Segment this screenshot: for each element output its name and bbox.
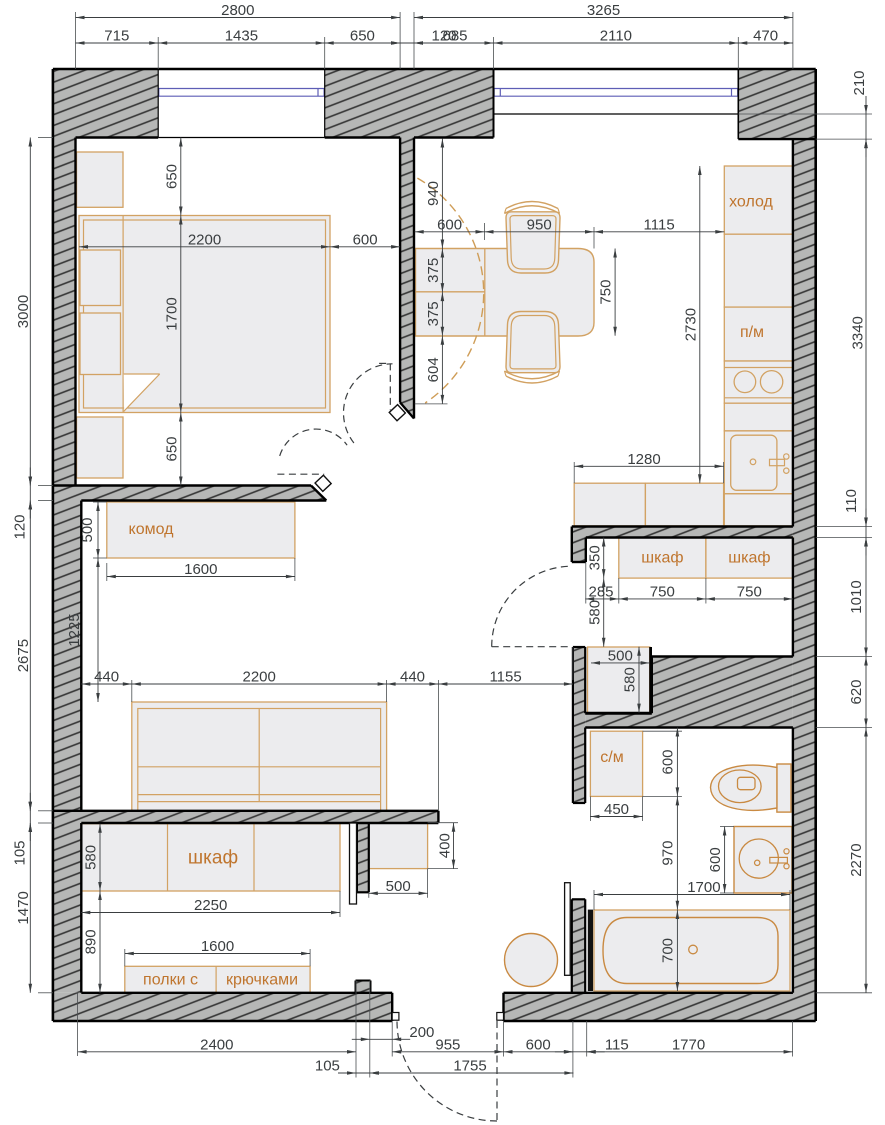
svg-text:2730: 2730 [682,308,699,341]
svg-text:2675: 2675 [15,639,32,672]
svg-text:650: 650 [350,27,375,44]
svg-text:3265: 3265 [587,2,620,19]
svg-text:115: 115 [605,1036,629,1053]
svg-text:470: 470 [753,27,778,44]
svg-text:600: 600 [707,847,724,872]
svg-text:650: 650 [163,164,180,189]
svg-text:105: 105 [315,1057,340,1074]
svg-text:шкаф: шкаф [188,848,238,869]
svg-text:950: 950 [527,216,552,233]
svg-text:685: 685 [442,27,467,44]
svg-text:750: 750 [598,280,615,305]
svg-text:890: 890 [82,929,99,954]
svg-text:500: 500 [386,878,411,895]
svg-text:крючками: крючками [226,972,298,989]
svg-text:600: 600 [659,749,676,774]
svg-text:120: 120 [11,514,28,539]
svg-text:3000: 3000 [15,295,32,328]
svg-text:210: 210 [851,70,868,95]
svg-text:450: 450 [604,801,629,818]
svg-text:п/м: п/м [740,324,764,341]
svg-text:1700: 1700 [163,297,180,330]
svg-text:600: 600 [353,231,378,248]
svg-text:комод: комод [129,521,175,538]
svg-text:500: 500 [608,647,633,664]
svg-text:2250: 2250 [194,897,227,914]
svg-text:580: 580 [586,600,603,625]
svg-text:200: 200 [409,1024,434,1041]
svg-text:105: 105 [11,840,28,865]
svg-text:750: 750 [650,583,675,600]
svg-text:440: 440 [94,668,119,685]
svg-text:375: 375 [425,258,442,283]
svg-text:1115: 1115 [644,216,675,233]
svg-text:350: 350 [586,545,603,570]
svg-text:940: 940 [425,181,442,206]
svg-text:2110: 2110 [600,27,632,44]
svg-text:3340: 3340 [849,316,866,349]
svg-text:400: 400 [436,833,453,858]
svg-text:шкаф: шкаф [641,550,683,567]
svg-text:955: 955 [435,1036,460,1053]
svg-text:110: 110 [843,489,860,513]
svg-text:500: 500 [79,517,96,542]
svg-text:1770: 1770 [672,1036,705,1053]
svg-text:1600: 1600 [201,938,234,955]
svg-text:1700: 1700 [687,879,720,896]
svg-text:1755: 1755 [453,1057,486,1074]
svg-text:шкаф: шкаф [728,550,770,567]
svg-text:холод: холод [729,194,773,211]
svg-text:1470: 1470 [15,891,32,924]
svg-text:с/м: с/м [600,749,623,766]
svg-text:2200: 2200 [243,668,276,685]
svg-text:1600: 1600 [184,561,217,578]
svg-text:1435: 1435 [225,27,258,44]
svg-text:620: 620 [848,679,865,704]
svg-text:полки с: полки с [143,972,198,989]
svg-text:2270: 2270 [848,843,865,876]
svg-text:285: 285 [588,583,613,600]
svg-text:375: 375 [425,301,442,326]
svg-text:604: 604 [425,357,442,382]
svg-text:600: 600 [526,1036,551,1053]
svg-text:1225: 1225 [66,613,83,646]
svg-text:440: 440 [400,668,425,685]
svg-text:1155: 1155 [489,668,521,685]
svg-text:1280: 1280 [627,451,660,468]
svg-text:970: 970 [659,841,676,866]
svg-text:650: 650 [163,436,180,461]
svg-text:600: 600 [437,216,462,233]
svg-text:715: 715 [104,27,129,44]
svg-text:2800: 2800 [221,2,254,19]
svg-text:750: 750 [737,583,762,600]
svg-text:1010: 1010 [848,580,865,613]
svg-text:580: 580 [622,667,639,692]
svg-text:580: 580 [82,845,99,870]
svg-text:2200: 2200 [188,231,221,248]
svg-text:2400: 2400 [200,1036,233,1053]
svg-text:700: 700 [659,938,676,963]
